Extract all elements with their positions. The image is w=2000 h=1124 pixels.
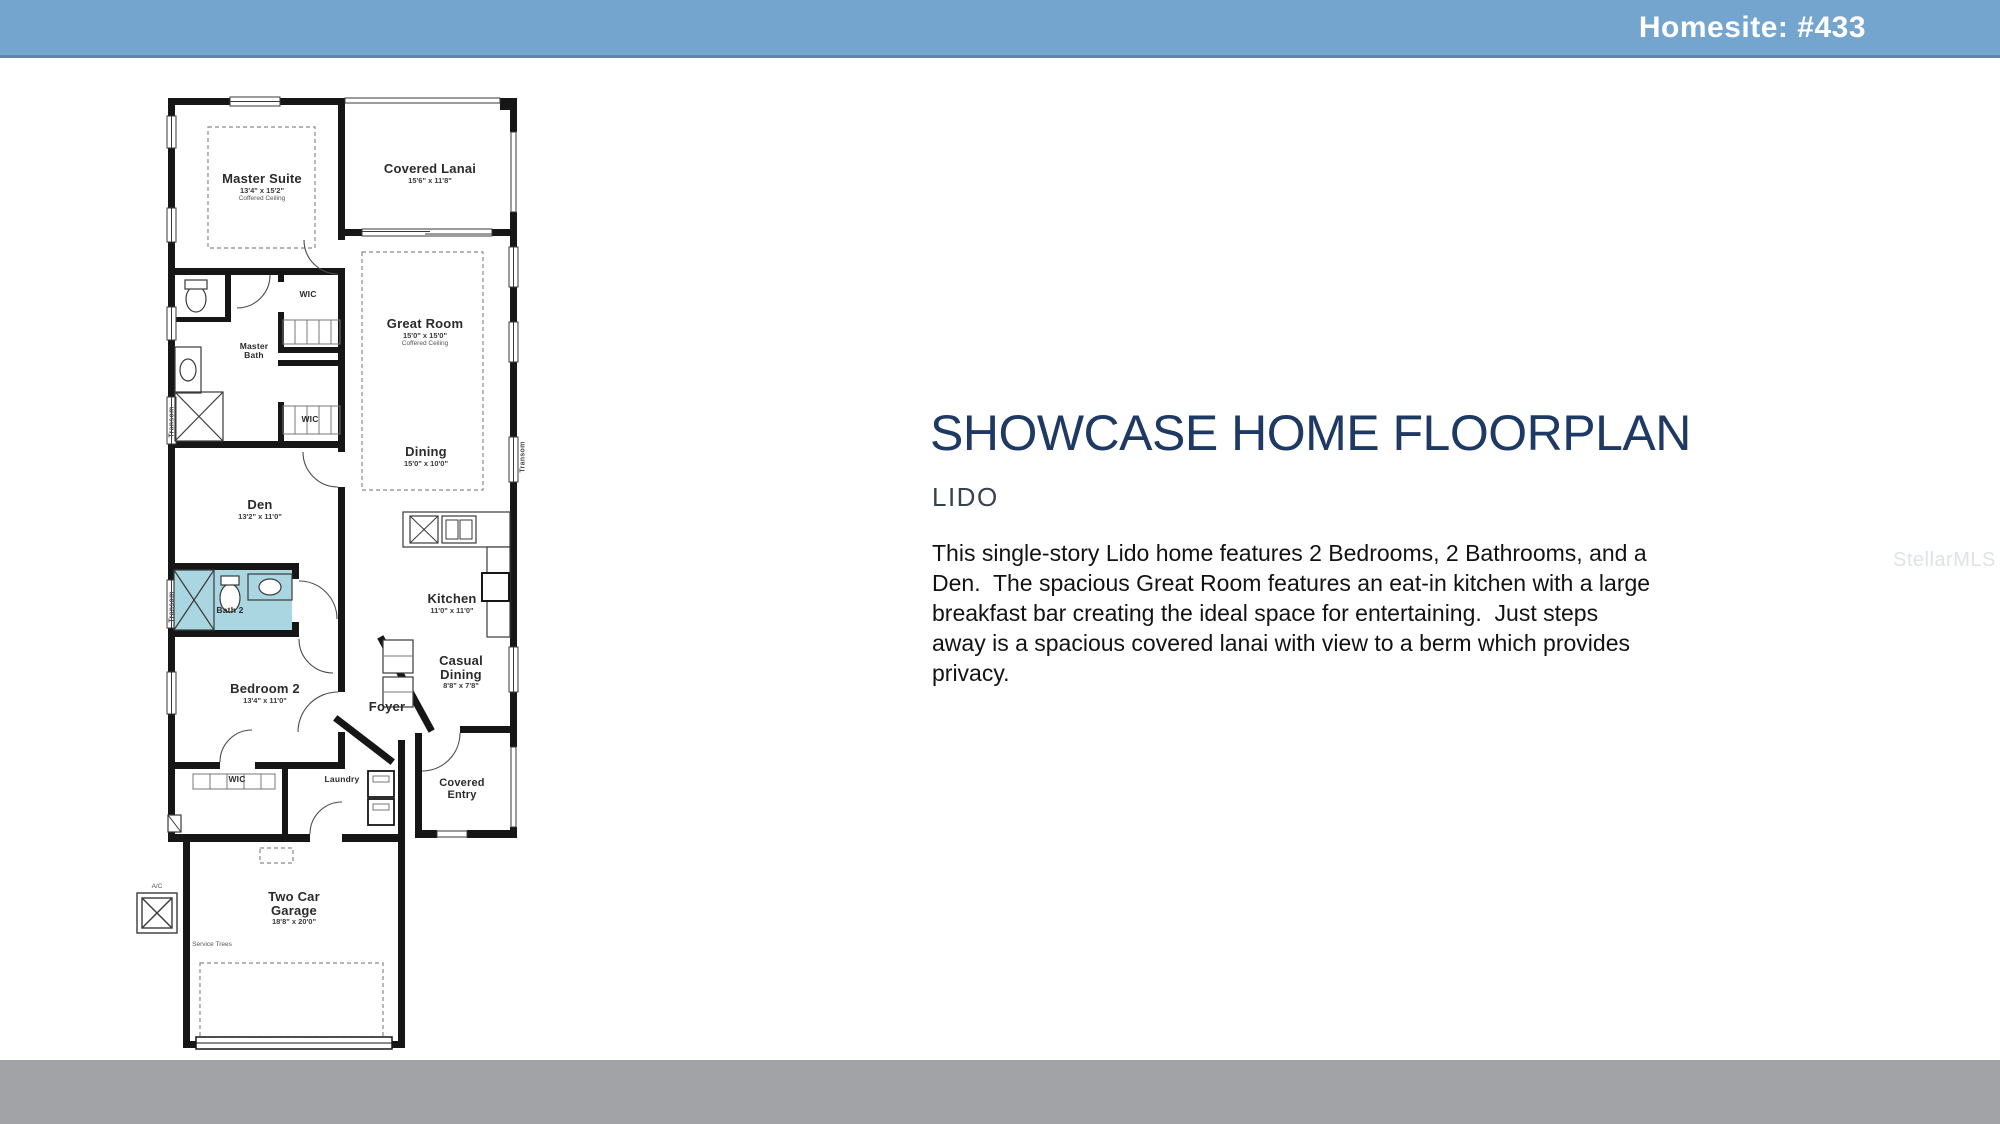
room-label-kitchen: Kitchen 11'0" x 11'0" — [427, 592, 476, 615]
room-label-great-room: Great Room 15'0" x 15'0" Coffered Ceilin… — [387, 317, 463, 347]
room-label-bedroom-2: Bedroom 2 13'4" x 11'0" — [230, 682, 300, 705]
transom-label-right: Transom — [520, 441, 527, 472]
room-label-wic-1: WIC — [299, 290, 316, 299]
room-label-master-bath: Master Bath — [231, 342, 277, 360]
room-label-covered-entry: Covered Entry — [433, 778, 491, 801]
model-name: LIDO — [932, 482, 999, 513]
transom-label-left-2: Transom — [169, 591, 176, 622]
room-label-foyer: Foyer — [369, 700, 405, 714]
description-paragraph: This single-story Lido home features 2 B… — [932, 538, 1658, 688]
ac-label: A/C — [152, 883, 163, 890]
service-label: Service Trees — [187, 941, 237, 948]
page-title: SHOWCASE HOME FLOORPLAN — [930, 404, 1691, 462]
mls-watermark: StellarMLS — [1893, 549, 1996, 572]
header-bar: Homesite: #433 — [0, 0, 2000, 58]
room-label-laundry: Laundry — [325, 775, 360, 784]
homesite-label: Homesite: #433 — [1639, 11, 1866, 45]
room-label-den: Den 13'2" x 11'0" — [238, 498, 282, 521]
floorplan: Master Suite 13'4" x 15'2" Coffered Ceil… — [130, 92, 530, 1050]
room-label-covered-lanai: Covered Lanai 15'6" x 11'8" — [384, 162, 476, 185]
room-label-wic-2: WIC — [301, 415, 318, 424]
room-label-master-suite: Master Suite 13'4" x 15'2" Coffered Ceil… — [222, 172, 302, 202]
footer-bar: ©2022. Prices, homesites, amenities, hom… — [0, 1060, 2000, 1124]
room-label-bath-2: Bath 2 — [216, 606, 243, 615]
room-label-wic-3: WIC — [228, 775, 245, 784]
room-label-dining: Dining 15'0" x 10'0" — [404, 445, 448, 468]
flyer-page: Homesite: #433 — [0, 0, 2000, 1124]
room-label-two-car-garage: Two Car Garage 18'8" x 20'0" — [261, 890, 327, 926]
room-label-casual-dining: Casual Dining 8'8" x 7'8" — [430, 654, 492, 690]
floorplan-drawing — [130, 92, 530, 1050]
transom-label-left-1: Transom — [169, 406, 176, 437]
